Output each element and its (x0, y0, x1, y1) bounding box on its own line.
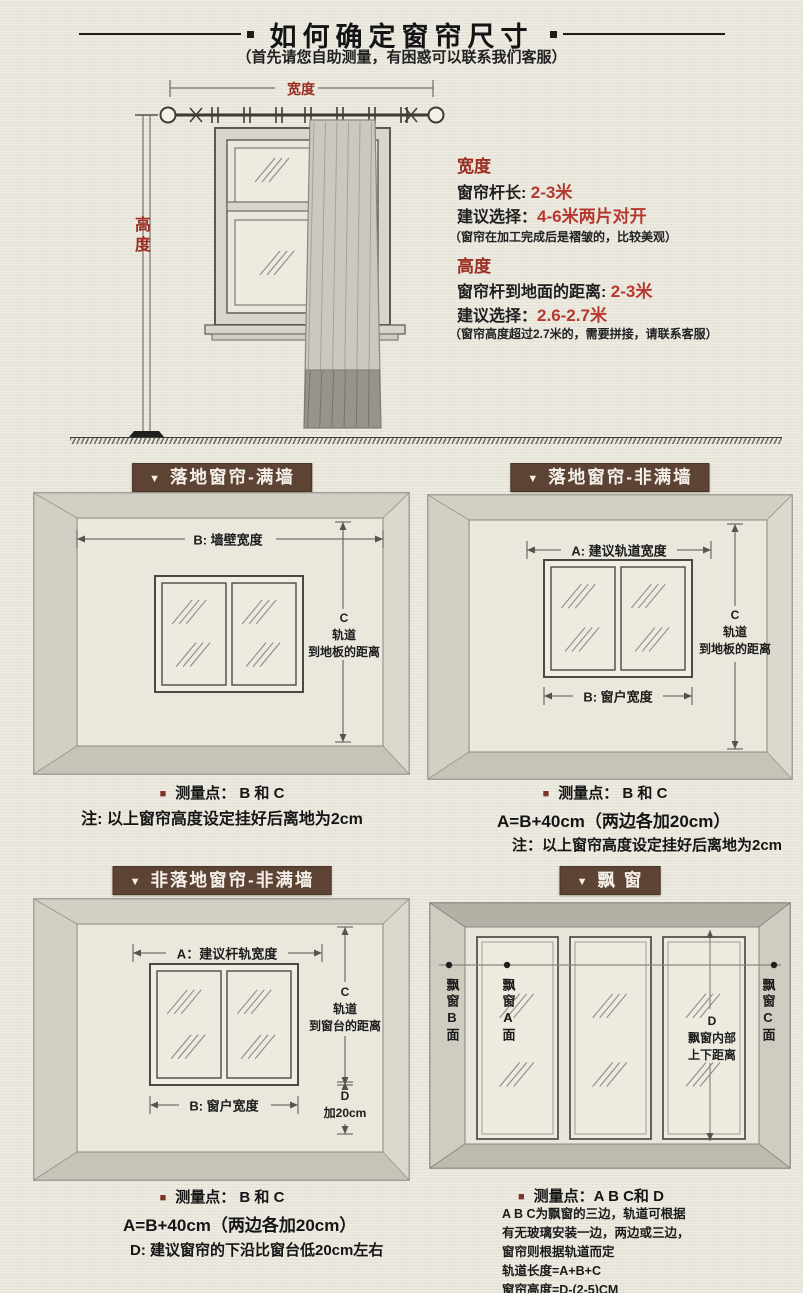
p2-note1-text: 测量点： B 和 C (558, 785, 667, 802)
p3-c-label: C 轨道 到窗台的距离 (309, 984, 381, 1035)
title-right-line (563, 33, 725, 35)
title-left-line (79, 33, 241, 35)
infographic-canvas: 如何确定窗帘尺寸 （首先请您自助测量，有困惑可以联系我们客服） 宽度 高度 宽度… (0, 0, 803, 1293)
p2-b-label: B: 窗户宽度 (583, 687, 652, 706)
p1-c3: 到地板的距离 (308, 644, 380, 661)
triangle-icon: ▼ (527, 473, 540, 485)
p3-c3: 到窗台的距离 (309, 1018, 381, 1035)
p4-d3: 上下距离 (688, 1047, 736, 1064)
p4-note-line: 窗帘则根据轨道而定 (502, 1243, 690, 1262)
p4-d1: D (688, 1013, 736, 1030)
width-line1: 窗帘杆长: 2-3米 (457, 178, 572, 203)
p3-note1: ■测量点： B 和 C (160, 1186, 285, 1207)
p2-c-label: C 轨道 到地板的距离 (699, 607, 771, 658)
p4-a-face-label: 飘窗A面 (499, 978, 518, 1044)
height-note: （窗帘高度超过2.7米的，需要拼接，请联系客服） (449, 325, 718, 342)
p2-c3: 到地板的距离 (699, 641, 771, 658)
height-line2-label: 建议选择： (457, 308, 537, 325)
p4-b-face-label: 飘窗B面 (443, 978, 462, 1044)
panel3-header: ▼非落地窗帘-非满墙 (113, 866, 332, 895)
bay-window-diagram (427, 897, 793, 1174)
p1-note2: 注: 以上窗帘高度设定挂好后离地为2cm (81, 805, 363, 829)
wall-diagram-above-sill (33, 898, 410, 1181)
width-dimension-label: 宽度 (287, 79, 315, 99)
p4-note1: ■测量点：A B C和 D (518, 1185, 664, 1206)
height-line2-value: 2.6-2.7米 (537, 306, 607, 325)
width-line2-value: 4-6米两片对开 (537, 207, 647, 226)
panel4-header: ▼飘 窗 (560, 866, 661, 895)
p3-d2: 加20cm (324, 1105, 367, 1122)
p4-note-line: A B C为飘窗的三边，轨道可根据 (502, 1205, 690, 1224)
height-section-heading: 高度 (457, 252, 491, 277)
page-subtitle: （首先请您自助测量，有困惑可以联系我们客服） (0, 46, 803, 67)
triangle-icon: ▼ (149, 473, 162, 485)
bullet-square-icon: ■ (160, 788, 167, 800)
p4-note-line: 窗帘高度=D-(2-5)CM (502, 1281, 690, 1293)
p3-d1: D (324, 1088, 367, 1105)
height-line2: 建议选择：2.6-2.7米 (457, 301, 607, 326)
p1-c1: C (308, 610, 380, 627)
panel2-header: ▼落地窗帘-非满墙 (510, 463, 709, 492)
width-line1-label: 窗帘杆长: (457, 185, 531, 202)
p1-note1: ■测量点： B 和 C (160, 782, 285, 803)
panel2-title: 落地窗帘-非满墙 (548, 467, 692, 487)
title-right-square-icon (550, 31, 557, 38)
p1-c-label: C 轨道 到地板的距离 (308, 610, 380, 661)
p4-note1-text: 测量点：A B C和 D (534, 1188, 664, 1205)
panel4-title: 飘 窗 (598, 870, 644, 890)
bullet-square-icon: ■ (543, 788, 550, 800)
p1-c2: 轨道 (308, 627, 380, 644)
triangle-icon: ▼ (130, 876, 143, 888)
p3-c1: C (309, 984, 381, 1001)
p3-b-label: B: 窗户宽度 (189, 1096, 258, 1115)
p2-c1: C (699, 607, 771, 624)
width-line2-label: 建议选择： (457, 209, 537, 226)
panel1-header: ▼落地窗帘-满墙 (132, 463, 312, 492)
p1-b-label: B: 墙壁宽度 (193, 530, 262, 549)
p4-c-face-label: 飘窗C面 (759, 978, 778, 1044)
title-left-square-icon (247, 31, 254, 38)
width-note: （窗帘在加工完成后是褶皱的，比较美观） (449, 228, 677, 245)
p2-a-label: A: 建议轨道宽度 (571, 541, 666, 560)
p2-note3: 注：以上窗帘高度设定挂好后离地为2cm (512, 834, 782, 855)
panel3-title: 非落地窗帘-非满墙 (151, 870, 315, 890)
p4-note-line: 轨道长度=A+B+C (502, 1262, 690, 1281)
p2-note2: A=B+40cm（两边各加20cm） (497, 807, 730, 832)
p3-a-label: A：建议杆轨宽度 (177, 944, 277, 963)
bullet-square-icon: ■ (160, 1192, 167, 1204)
height-line1-label: 窗帘杆到地面的距离: (457, 284, 611, 301)
p4-note-line: 有无玻璃安装一边，两边或三边， (502, 1224, 690, 1243)
width-line1-value: 2-3米 (531, 183, 573, 202)
p3-d-label: D 加20cm (324, 1088, 367, 1122)
height-dimension-label: 高度 (128, 216, 152, 256)
panel1-title: 落地窗帘-满墙 (170, 467, 295, 487)
p1-note1-text: 测量点： B 和 C (175, 785, 284, 802)
triangle-icon: ▼ (577, 876, 590, 888)
height-line1-value: 2-3米 (611, 282, 653, 301)
p3-c2: 轨道 (309, 1001, 381, 1018)
width-line2: 建议选择：4-6米两片对开 (457, 202, 647, 227)
p2-note1: ■测量点： B 和 C (543, 782, 668, 803)
p2-c2: 轨道 (699, 624, 771, 641)
width-section-heading: 宽度 (457, 152, 491, 177)
p4-d2: 飘窗内部 (688, 1030, 736, 1047)
p4-note-block: A B C为飘窗的三边，轨道可根据 有无玻璃安装一边，两边或三边， 窗帘则根据轨… (502, 1205, 690, 1293)
rod-window-diagram (60, 70, 460, 450)
p3-note2: A=B+40cm（两边各加20cm） (123, 1211, 356, 1236)
p4-d-label: D 飘窗内部 上下距离 (688, 1013, 736, 1064)
floor-hatch-line (70, 437, 782, 444)
bullet-square-icon: ■ (518, 1191, 525, 1203)
height-line1: 窗帘杆到地面的距离: 2-3米 (457, 277, 652, 302)
p3-note1-text: 测量点： B 和 C (175, 1189, 284, 1206)
p3-note3: D: 建议窗帘的下沿比窗台低20cm左右 (130, 1239, 383, 1260)
